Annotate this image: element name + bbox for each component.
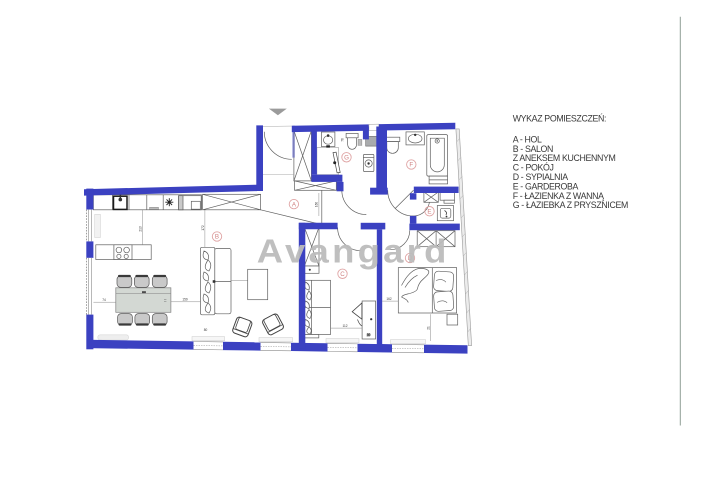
svg-text:E: E — [427, 208, 431, 215]
svg-text:160: 160 — [315, 202, 319, 208]
svg-text:112: 112 — [342, 324, 347, 328]
svg-text:F: F — [409, 162, 413, 169]
svg-text:G: G — [344, 155, 349, 162]
svg-text:Avangard: Avangard — [257, 233, 450, 270]
svg-text:80: 80 — [204, 328, 208, 332]
svg-text:159: 159 — [182, 298, 188, 302]
svg-text:G - ŁAZIEBKA Z PRYSZNICEM: G - ŁAZIEBKA Z PRYSZNICEM — [513, 200, 628, 210]
svg-text:172: 172 — [201, 225, 205, 231]
svg-text:C: C — [340, 271, 345, 278]
svg-text:162: 162 — [386, 297, 392, 301]
svg-text:74: 74 — [102, 298, 106, 302]
svg-text:21: 21 — [427, 326, 431, 330]
svg-text:213: 213 — [139, 226, 143, 232]
svg-text:B: B — [215, 234, 219, 241]
svg-text:WYKAZ POMIESZCZEŃ:: WYKAZ POMIESZCZEŃ: — [513, 114, 606, 124]
svg-text:76: 76 — [341, 138, 345, 142]
svg-text:10: 10 — [367, 333, 371, 337]
